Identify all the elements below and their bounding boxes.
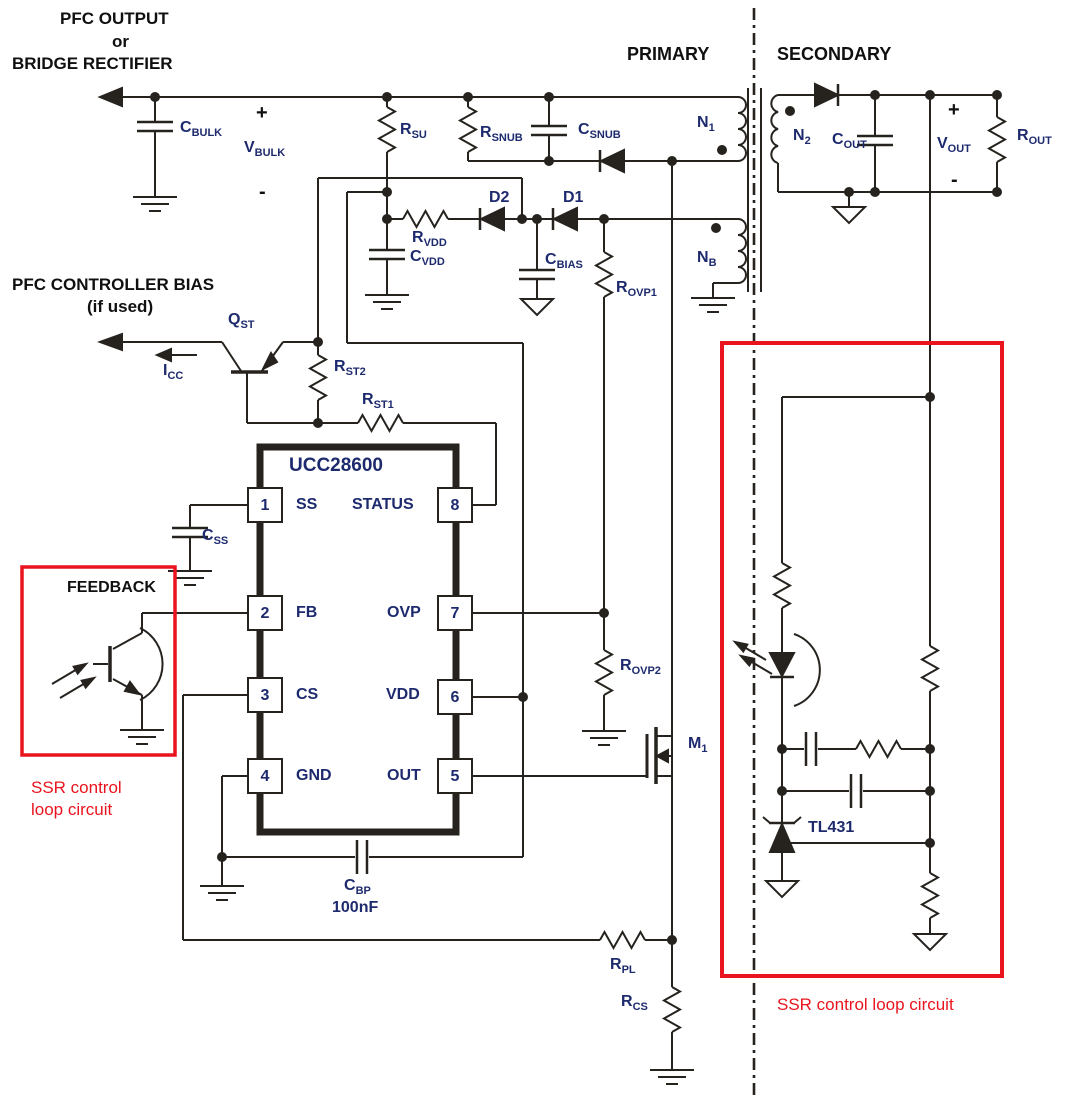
optocoupler-transistor [52,613,164,744]
label-rsu: RSU [400,122,427,141]
label-rsnub: RSNUB [480,125,523,144]
resistor-rvdd [387,211,480,227]
diode-d1 [553,208,738,230]
label-cout: COUT [832,132,867,151]
secondary-label: SECONDARY [777,45,891,63]
label-nb: NB [697,250,717,269]
ssr-left-caption-line2: loop circuit [31,801,112,818]
label-tl431: TL431 [808,820,854,836]
pin-number-6: 6 [451,690,460,706]
pin-name-status: STATUS [352,497,414,513]
cs-wire [183,695,600,940]
primary-label: PRIMARY [627,45,709,63]
label-cbias: CBIAS [545,252,583,271]
label-rpl: RPL [610,957,636,976]
label-vbulk: VBULK [244,140,285,159]
label-m1: M1 [688,736,707,755]
gnd-wire [200,776,248,900]
ssr-loop-wires [774,397,930,653]
label-cbp-value: 100nF [332,900,378,916]
label-rvdd: RVDD [412,230,447,249]
vout-sense-wire [926,95,934,401]
label-rst1: RST1 [362,392,394,411]
label-d1: D1 [563,190,583,209]
capacitor-cvdd [365,219,409,309]
capacitor-cbulk [133,97,177,211]
diode-d2 [480,208,553,230]
pin-name-cs: CS [296,687,318,703]
label-vout: VOUT [937,136,971,155]
label-rovp2: ROVP2 [620,658,661,677]
source-title-line3: BRIDGE RECTIFIER [12,55,173,72]
capacitor-csnub [531,97,567,161]
source-title-line2: or [112,33,129,50]
schematic-ucc28600: PFC OUTPUT or BRIDGE RECTIFIER PFC CONTR… [0,0,1075,1097]
vbulk-plus-sign: + [256,103,268,123]
label-qst: QST [228,312,255,331]
secondary-return-rail [833,188,1001,223]
transistor-qst [222,338,322,423]
resistor-rout [989,95,1005,192]
pin-name-out: OUT [387,768,421,784]
schematic-drawing [0,0,1075,1097]
pin-number-7: 7 [451,606,460,622]
pin-name-fb: FB [296,605,317,621]
pin-name-ss: SS [296,497,317,513]
label-rcs: RCS [621,994,648,1013]
label-rout: ROUT [1017,128,1052,147]
pin-name-ovp: OVP [387,605,421,621]
resistor-rpl [600,932,676,948]
label-rovp1: ROVP1 [616,280,657,299]
feedback-label: FEEDBACK [67,580,156,596]
pin-number-4: 4 [261,769,270,785]
label-cbulk: CBULK [180,120,222,139]
pin-number-1: 1 [261,498,270,514]
ic-pin-boxes [248,488,472,793]
resistor-rovp1 [596,219,612,617]
label-d2: D2 [489,190,509,209]
ssr-left-caption-line1: SSR control [31,779,122,796]
vdd-node-wire [347,192,527,857]
compensation-rc-upper [782,732,930,766]
label-csnub: CSNUB [578,122,621,141]
sense-divider [914,397,946,950]
pin-name-vdd: VDD [386,687,420,703]
vbulk-minus-sign: - [259,182,266,202]
arrow-to-pfc-bias [100,334,222,350]
ssr-right-caption: SSR control loop circuit [777,996,954,1013]
resistor-rsnub [460,97,476,161]
label-n2: N2 [793,128,811,147]
resistor-rsu [379,97,395,223]
label-icc: ICC [163,363,183,382]
label-cvdd: CVDD [410,249,445,268]
vout-plus-sign: + [948,100,960,120]
icc-current-arrow [157,349,197,361]
pin-number-2: 2 [261,606,270,622]
label-rst2: RST2 [334,359,366,378]
pin-number-8: 8 [451,498,460,514]
pin-number-5: 5 [451,769,460,785]
snubber-diode [468,150,676,172]
bulk-rail-wire [100,88,738,106]
resistor-rcs [650,987,694,1084]
resistor-rovp2 [582,613,626,745]
label-cbp: CBP [344,878,371,897]
compensation-c-lower [782,774,930,808]
bias-title-line1: PFC CONTROLLER BIAS [12,276,214,293]
vout-minus-sign: - [951,170,958,190]
resistor-rst2 [310,342,326,427]
pin-name-gnd: GND [296,768,332,784]
capacitor-cbp [222,840,523,874]
rectifier-diode [815,84,1001,106]
label-n1: N1 [697,115,715,134]
label-css: CSS [202,528,228,547]
pin-number-3: 3 [261,688,270,704]
optocoupler-led [735,634,820,823]
bias-title-line2: (if used) [87,298,153,315]
source-title-line1: PFC OUTPUT [60,10,169,27]
ic-title: UCC28600 [289,456,383,475]
